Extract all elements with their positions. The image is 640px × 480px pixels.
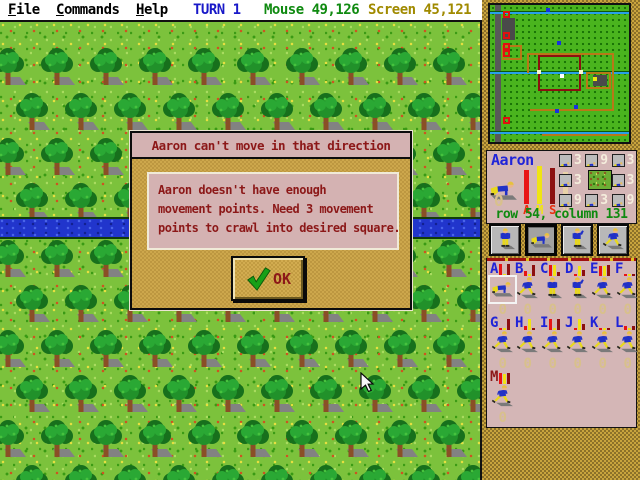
roster-unit-bar <box>557 272 560 276</box>
minimap-unit-dot <box>546 8 550 12</box>
tree-icon <box>382 420 418 460</box>
tree-icon <box>39 48 75 88</box>
roster-unit-head: M <box>490 370 515 384</box>
roster-unit-bar <box>499 328 502 330</box>
dialog-message-line: movement points. Need 3 movement <box>158 200 397 219</box>
roster-unit-bars <box>624 317 635 330</box>
cost-grid-cell: 3 <box>559 151 585 169</box>
roster-unit-value: 0 <box>565 356 590 372</box>
tree-icon <box>88 330 124 370</box>
minimap-unit-dot <box>574 105 578 109</box>
roster-unit-sprite <box>565 277 590 302</box>
tree-icon <box>259 93 295 133</box>
roster-unit-head: A <box>490 262 515 276</box>
roster-unit-bar <box>624 326 627 330</box>
person-crawl-icon <box>529 228 553 250</box>
roster-unit-L[interactable]: L0 <box>615 316 640 372</box>
roster-unit-C[interactable]: C0 <box>540 262 565 318</box>
person-salute-icon <box>565 277 589 299</box>
cost-value: 3 <box>627 153 634 168</box>
minimap-unit-dot <box>557 41 561 45</box>
minimap-path <box>530 109 614 111</box>
person-crawl-icon <box>560 180 571 187</box>
roster-unit-sprite <box>615 331 640 356</box>
minimap-objective-marker <box>503 117 510 124</box>
roster-unit-head: G <box>490 316 515 330</box>
minimap[interactable] <box>488 3 631 144</box>
roster-unit-bar <box>607 265 610 276</box>
tree-icon <box>210 375 246 415</box>
roster-unit-I[interactable]: I0 <box>540 316 565 372</box>
stat-bar <box>537 166 542 204</box>
dialog-body: Aaron doesn't have enoughmovement points… <box>132 159 410 308</box>
roster-unit-H[interactable]: H0 <box>515 316 540 372</box>
roster-unit-value: 0 <box>540 356 565 372</box>
roster-unit-F[interactable]: F0 <box>615 262 640 318</box>
dialog-title: Aaron can't move in that direction <box>132 133 410 159</box>
person-salute-icon <box>565 228 589 250</box>
tree-icon <box>39 420 75 460</box>
tree-icon <box>14 375 50 415</box>
roster-unit-letter: F <box>615 262 623 276</box>
person-crawl-icon <box>613 180 624 187</box>
roster-unit-bar <box>528 319 531 330</box>
tree-icon <box>161 93 197 133</box>
tree-icon <box>431 330 467 370</box>
roster-unit-sprite <box>490 277 515 302</box>
person-crawl-icon <box>613 160 624 167</box>
cost-value: 9 <box>600 153 607 168</box>
roster-unit-sprite <box>590 331 615 356</box>
tree-icon <box>382 48 418 88</box>
unit-mini-icon <box>585 194 598 207</box>
roster-unit-sprite <box>490 385 515 410</box>
roster-unit-bar <box>503 274 506 276</box>
roster-unit-bar <box>578 266 581 276</box>
minimap-unit-dot <box>560 74 564 78</box>
roster-unit-bar <box>574 328 577 330</box>
roster-unit-head: D <box>565 262 590 276</box>
terrain-tile <box>588 170 611 190</box>
person-run-icon <box>601 228 625 250</box>
tree-icon <box>39 240 75 280</box>
minimap-objective-marker <box>503 50 510 57</box>
tree-icon <box>137 330 173 370</box>
roster-unit-sprite <box>590 277 615 302</box>
roster-unit-head: L <box>615 316 640 330</box>
roster-unit-bars <box>599 263 610 276</box>
roster-unit-sprite <box>615 277 640 302</box>
unit-mini-icon <box>559 154 572 167</box>
roster-unit-bar <box>603 266 606 276</box>
run-mode-button[interactable] <box>597 224 629 256</box>
roster-unit-bars <box>499 317 510 330</box>
roster-unit-bar <box>628 328 631 330</box>
menu-bar: TURN 1 Mouse 49,126 Screen 45,121 FileCo… <box>0 0 482 22</box>
roster-unit-bar <box>507 373 510 384</box>
tree-icon <box>210 465 246 480</box>
roster-unit-bar <box>557 319 560 330</box>
tree-icon <box>137 48 173 88</box>
tree-icon <box>0 48 26 88</box>
roster-unit-head: K <box>590 316 615 330</box>
roster-unit-head: I <box>540 316 565 330</box>
dialog-message-line: Aaron doesn't have enough <box>158 181 397 200</box>
person-run-icon <box>515 331 539 353</box>
unit-location: row 54, column 131 <box>487 207 636 222</box>
dialog-message: Aaron doesn't have enoughmovement points… <box>147 172 399 250</box>
unit-mini-icon <box>559 194 572 207</box>
roster-unit-G[interactable]: G0 <box>490 316 515 372</box>
roster-unit-bars <box>549 263 560 276</box>
roster-unit-bar <box>603 328 606 330</box>
cost-grid-cell: 9 <box>585 151 611 169</box>
roster-unit-bar <box>632 326 635 330</box>
roster-unit-bar <box>582 270 585 276</box>
minimap-objective-marker <box>503 43 510 50</box>
tree-icon <box>0 420 26 460</box>
checkmark-icon <box>245 266 271 292</box>
person-run-icon <box>540 331 564 353</box>
tree-icon <box>259 465 295 480</box>
roster-unit-A[interactable]: A0 <box>490 262 515 318</box>
roster-unit-head: J <box>565 316 590 330</box>
roster-unit-bar <box>528 274 531 276</box>
roster-unit-E[interactable]: E0 <box>590 262 615 318</box>
minimap-river <box>490 11 629 14</box>
roster-unit-bars <box>574 263 585 276</box>
stat-bar <box>524 170 529 204</box>
unit-mini-icon <box>612 174 625 187</box>
minimap-unit-dot <box>593 77 597 81</box>
roster-unit-letter: E <box>590 262 598 276</box>
roster-unit-letter: D <box>565 262 573 276</box>
tree-icon <box>455 285 482 325</box>
menu-help[interactable]: Help <box>136 0 168 20</box>
tree-icon <box>284 420 320 460</box>
tree-icon <box>63 375 99 415</box>
roster-divider <box>487 258 636 261</box>
roster-unit-letter: A <box>490 262 498 276</box>
tree-icon <box>308 375 344 415</box>
tree-icon <box>406 465 442 480</box>
minimap-path <box>542 134 627 136</box>
unit-info-panel: Aaron 0 AMSV 39333939 row 54, column 131 <box>486 150 637 224</box>
roster-unit-bars <box>499 371 510 384</box>
roster-unit-value: 0 <box>515 356 540 372</box>
person-run-icon <box>565 331 589 353</box>
person-crawl-icon <box>586 200 597 207</box>
roster-unit-sprite <box>515 277 540 302</box>
roster-unit-bar <box>607 328 610 330</box>
roster-unit-head: E <box>590 262 615 276</box>
cost-value: 3 <box>574 153 581 168</box>
tree-icon <box>333 420 369 460</box>
movement-mode-buttons <box>486 224 629 256</box>
roster-unit-M[interactable]: M0 <box>490 370 515 426</box>
tree-icon <box>455 465 482 480</box>
ok-button-label: OK <box>273 270 291 288</box>
roster-unit-head: C <box>540 262 565 276</box>
person-run-icon <box>490 331 514 353</box>
tree-icon <box>186 48 222 88</box>
person-walk-icon <box>493 228 517 250</box>
tree-icon <box>235 420 271 460</box>
tree-icon <box>161 375 197 415</box>
roster-unit-bars <box>499 263 510 276</box>
minimap-unit-dot <box>555 109 559 113</box>
roster-unit-letter: I <box>540 316 548 330</box>
tree-icon <box>112 375 148 415</box>
roster-unit-letter: G <box>490 316 498 330</box>
roster-unit-letter: B <box>515 262 523 276</box>
minimap-objective-marker <box>503 32 510 39</box>
mouse-coordinates: Mouse 49,126 <box>264 0 359 20</box>
tree-icon <box>406 375 442 415</box>
tree-icon <box>39 330 75 370</box>
unit-mini-icon <box>585 154 598 167</box>
tree-icon <box>63 465 99 480</box>
roster-unit-bar <box>624 274 627 276</box>
menu-file[interactable]: File <box>8 0 40 20</box>
tree-icon <box>382 330 418 370</box>
cost-value: 3 <box>627 173 634 188</box>
roster-unit-bars <box>524 263 535 276</box>
roster-unit-bar <box>628 274 631 276</box>
roster-unit-head: B <box>515 262 540 276</box>
roster-unit-bar <box>499 373 502 384</box>
roster-unit-bar <box>599 266 602 276</box>
roster-unit-bar <box>549 319 552 330</box>
person-crawl-icon <box>560 160 571 167</box>
tree-icon <box>88 240 124 280</box>
tree-icon <box>14 465 50 480</box>
tree-icon <box>431 420 467 460</box>
tree-icon <box>63 285 99 325</box>
tree-icon <box>63 93 99 133</box>
cost-value: 9 <box>574 193 581 208</box>
tree-icon <box>112 465 148 480</box>
minimap-unit-dot <box>579 70 583 74</box>
roster-unit-sprite <box>540 331 565 356</box>
tree-icon <box>235 330 271 370</box>
roster-unit-bar <box>507 319 510 330</box>
roster-unit-J[interactable]: J0 <box>565 316 590 372</box>
crawl-mode-button[interactable] <box>525 224 557 256</box>
person-run-icon <box>615 331 639 353</box>
tree-icon <box>14 93 50 133</box>
tree-icon <box>186 330 222 370</box>
roster-unit-K[interactable]: K0 <box>590 316 615 372</box>
roster-unit-bar <box>499 264 502 276</box>
roster-unit-bars <box>599 317 610 330</box>
roster-unit-bar <box>553 328 556 330</box>
roster-unit-bars <box>574 317 585 330</box>
tree-icon <box>88 420 124 460</box>
tree-icon <box>14 285 50 325</box>
person-walk-icon <box>540 277 564 299</box>
unit-roster: A0B0C0D0E0F0G0H0I0J0K0L0M0 <box>486 258 637 428</box>
person-run-icon <box>515 277 539 299</box>
tree-icon <box>431 48 467 88</box>
tree-icon <box>431 138 467 178</box>
menu-commands[interactable]: Commands <box>56 0 119 20</box>
roster-unit-head: F <box>615 262 640 276</box>
game-screen: TURN 1 Mouse 49,126 Screen 45,121 FileCo… <box>0 0 640 480</box>
tree-icon <box>186 420 222 460</box>
ok-button[interactable]: OK <box>231 256 305 301</box>
minimap-path <box>527 53 529 73</box>
roster-unit-bar <box>532 265 535 276</box>
tree-icon <box>284 330 320 370</box>
tree-icon <box>259 375 295 415</box>
person-crawl-icon <box>586 160 597 167</box>
tree-icon <box>455 93 482 133</box>
roster-unit-letter: C <box>540 262 548 276</box>
tree-icon <box>284 48 320 88</box>
unit-mini-icon <box>612 154 625 167</box>
cost-grid-row: 393 <box>559 151 637 169</box>
tree-icon <box>357 93 393 133</box>
person-crawl-icon <box>490 277 514 299</box>
roster-unit-bar <box>503 374 506 384</box>
tree-icon <box>333 48 369 88</box>
roster-unit-bar <box>503 328 506 330</box>
dialog: Aaron can't move in that direction Aaron… <box>130 131 412 310</box>
mouse-cursor-icon <box>360 372 375 393</box>
minimap-viewport-rect <box>538 55 581 91</box>
person-run-icon <box>490 385 514 407</box>
roster-unit-letter: K <box>590 316 598 330</box>
tree-icon <box>39 138 75 178</box>
tree-icon <box>137 420 173 460</box>
tree-icon <box>88 48 124 88</box>
roster-unit-bars <box>624 263 635 276</box>
cost-grid-cell: 3 <box>612 169 637 191</box>
tree-icon <box>0 330 26 370</box>
roster-unit-bar <box>524 326 527 330</box>
roster-unit-value: 0 <box>490 410 515 426</box>
roster-unit-bar <box>532 328 535 330</box>
tree-icon <box>431 240 467 280</box>
cost-grid-cell <box>585 169 611 191</box>
cost-grid-row: 33 <box>559 169 637 191</box>
roster-unit-bar <box>578 319 581 330</box>
tree-icon <box>88 138 124 178</box>
roster-unit-head: H <box>515 316 540 330</box>
tree-icon <box>308 465 344 480</box>
roster-unit-bar <box>507 264 510 276</box>
roster-unit-sprite <box>515 331 540 356</box>
tree-icon <box>406 93 442 133</box>
roster-unit-sprite <box>540 277 565 302</box>
minimap-path <box>612 53 614 111</box>
tree-icon <box>235 48 271 88</box>
roster-unit-D[interactable]: D0 <box>565 262 590 318</box>
person-crawl-icon <box>560 200 571 207</box>
roster-unit-sprite <box>490 331 515 356</box>
tree-icon <box>455 375 482 415</box>
roster-unit-sprite <box>565 331 590 356</box>
unit-mini-icon <box>612 194 625 207</box>
roster-unit-bar <box>524 271 527 276</box>
minimap-unit-dot <box>537 70 541 74</box>
roster-unit-B[interactable]: B0 <box>515 262 540 318</box>
person-run-icon <box>615 277 639 299</box>
roster-unit-letter: M <box>490 370 498 384</box>
roster-unit-value: 0 <box>590 356 615 372</box>
turn-indicator: TURN 1 <box>193 0 241 20</box>
tree-icon <box>333 330 369 370</box>
roster-unit-bars <box>549 317 560 330</box>
movement-cost-grid: 39333939 <box>559 151 637 209</box>
tree-icon <box>308 93 344 133</box>
person-crawl-icon <box>613 200 624 207</box>
cost-value: 3 <box>600 193 607 208</box>
tree-icon <box>357 465 393 480</box>
walk-mode-button[interactable] <box>489 224 521 256</box>
roster-unit-letter: J <box>565 316 573 330</box>
sentry-mode-button[interactable] <box>561 224 593 256</box>
dialog-message-line: points to crawl into desired square. <box>158 219 397 238</box>
roster-unit-bar <box>582 324 585 330</box>
cost-grid-cell: 3 <box>612 151 637 169</box>
tree-icon <box>161 465 197 480</box>
stat-bar <box>550 168 555 204</box>
cost-value: 3 <box>574 173 581 188</box>
roster-unit-letter: L <box>615 316 623 330</box>
roster-unit-bar <box>599 328 602 330</box>
screen-coordinates: Screen 45,121 <box>368 0 471 20</box>
roster-unit-bar <box>574 274 577 276</box>
tree-icon <box>0 240 26 280</box>
cost-grid-cell: 3 <box>559 169 585 191</box>
tree-icon <box>112 93 148 133</box>
person-run-icon <box>590 277 614 299</box>
roster-unit-bar <box>632 274 635 276</box>
unit-mini-icon <box>559 174 572 187</box>
minimap-objective-marker <box>503 11 510 18</box>
roster-unit-bar <box>553 265 556 276</box>
tree-icon <box>0 138 26 178</box>
tree-icon <box>210 93 246 133</box>
roster-unit-bar <box>549 265 552 276</box>
roster-unit-bars <box>524 317 535 330</box>
roster-unit-value: 0 <box>615 356 640 372</box>
roster-unit-letter: H <box>515 316 523 330</box>
person-run-icon <box>590 331 614 353</box>
cost-value: 9 <box>627 193 634 208</box>
